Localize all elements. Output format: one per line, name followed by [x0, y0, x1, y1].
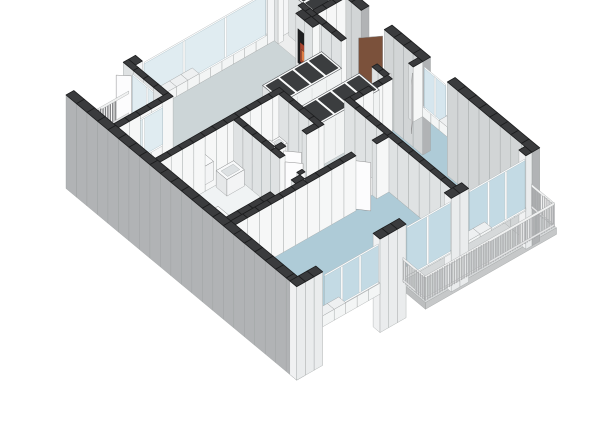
railing-slat	[416, 270, 417, 294]
door-leaf-bedroom1	[354, 160, 371, 210]
railing-slat	[425, 277, 426, 301]
railing-slat	[447, 265, 448, 289]
railing-slat	[432, 273, 433, 297]
railing-slat	[456, 259, 457, 283]
wall-int-32	[274, 0, 283, 44]
railing-slat	[422, 275, 423, 299]
railing-slat	[488, 241, 489, 265]
wall-int-26	[372, 133, 389, 199]
wall-int-29	[409, 58, 423, 122]
railing-slat	[427, 276, 428, 300]
railing-slat	[476, 248, 477, 272]
railing-slat	[461, 256, 462, 280]
door-leaf-bedroom2	[411, 73, 412, 134]
railing-slat	[473, 249, 474, 273]
railing-slat	[418, 272, 419, 296]
railing-slat	[459, 258, 460, 282]
floorplan-svg	[0, 0, 600, 424]
railing-slat	[481, 245, 482, 269]
railing-slat	[466, 254, 467, 278]
railing-slat	[435, 272, 436, 296]
wall-se-8	[290, 276, 306, 380]
railing-slat	[444, 266, 445, 290]
railing-slat	[430, 274, 431, 298]
railing-slat	[420, 273, 421, 297]
railing-slat	[483, 244, 484, 268]
railing-slat	[449, 263, 450, 287]
railing-slat	[554, 204, 555, 228]
railing-slat	[486, 242, 487, 266]
railing-slat	[437, 270, 438, 294]
railing-slat	[439, 269, 440, 293]
floorplan-3d-render	[0, 0, 600, 424]
railing-slat	[452, 262, 453, 286]
railing-slat	[454, 261, 455, 285]
railing-slat	[464, 255, 465, 279]
railing-slat	[478, 247, 479, 271]
railing-slat	[471, 251, 472, 275]
railing-slat	[442, 267, 443, 291]
railing-slat	[469, 252, 470, 276]
